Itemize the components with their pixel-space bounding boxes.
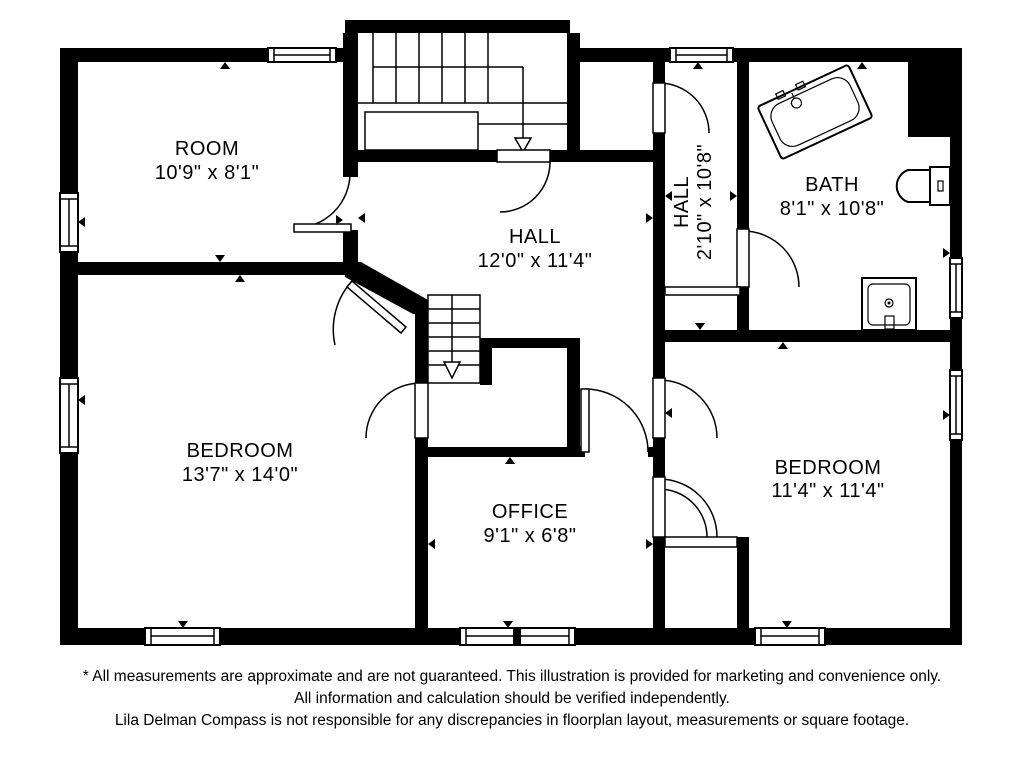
door-leaf-upper-hall-bottom xyxy=(665,287,740,295)
door-upper-hall xyxy=(653,83,709,133)
bath-label-dims: 8'1" x 10'8" xyxy=(780,198,885,220)
hall-upper-label-dims: 2'10" x 10'8" xyxy=(694,144,716,260)
window xyxy=(60,378,78,453)
door-bedroom-right xyxy=(653,378,717,438)
bedroom-left-label-dims: 13'7" x 14'0" xyxy=(182,464,298,486)
window xyxy=(268,48,336,62)
floorplan-page: ROOM 10'9" x 8'1" HALL 12'0" x 11'4" HAL… xyxy=(0,0,1024,768)
window xyxy=(60,193,78,252)
hall-main-label-dims: 12'0" x 11'4" xyxy=(478,250,593,272)
window xyxy=(950,370,962,440)
disclaimer-line-3: Lila Delman Compass is not responsible f… xyxy=(0,710,1024,732)
bath-label-name: BATH xyxy=(805,174,859,196)
bedroom-left-label-name: BEDROOM xyxy=(187,440,294,462)
door-bedroom-right-closet xyxy=(653,477,717,537)
door-bath xyxy=(737,229,799,287)
door-office xyxy=(581,389,648,452)
door-stairs-to-hall xyxy=(497,150,550,212)
hall-upper-label-name: HALL xyxy=(671,176,693,228)
door-bedroom-left-side xyxy=(366,383,428,438)
bedroom-right-label-dims: 11'4" x 11'4" xyxy=(771,480,884,502)
bathtub xyxy=(756,61,873,159)
door-leaf-closet-top xyxy=(665,537,737,547)
window xyxy=(670,48,733,62)
window xyxy=(145,628,220,645)
room-label-name: ROOM xyxy=(175,138,239,160)
window-double xyxy=(460,628,575,645)
toilet xyxy=(897,167,950,205)
staircase-lower xyxy=(428,295,480,383)
stair-direction-arrow xyxy=(515,67,531,152)
office-label-name: OFFICE xyxy=(492,501,568,523)
window xyxy=(755,628,825,645)
staircase-upper xyxy=(358,33,567,152)
sink xyxy=(862,278,916,330)
hall-main-label-name: HALL xyxy=(509,226,561,248)
disclaimer-line-1: * All measurements are approximate and a… xyxy=(0,666,1024,688)
window xyxy=(950,258,962,318)
room-label-dims: 10'9" x 8'1" xyxy=(155,162,260,184)
floorplan-canvas: ROOM 10'9" x 8'1" HALL 12'0" x 11'4" HAL… xyxy=(0,0,1024,768)
bedroom-right-label-name: BEDROOM xyxy=(775,457,882,479)
disclaimer-line-2: All information and calculation should b… xyxy=(0,688,1024,710)
office-label-dims: 9'1" x 6'8" xyxy=(484,525,577,547)
door-room xyxy=(294,173,351,232)
